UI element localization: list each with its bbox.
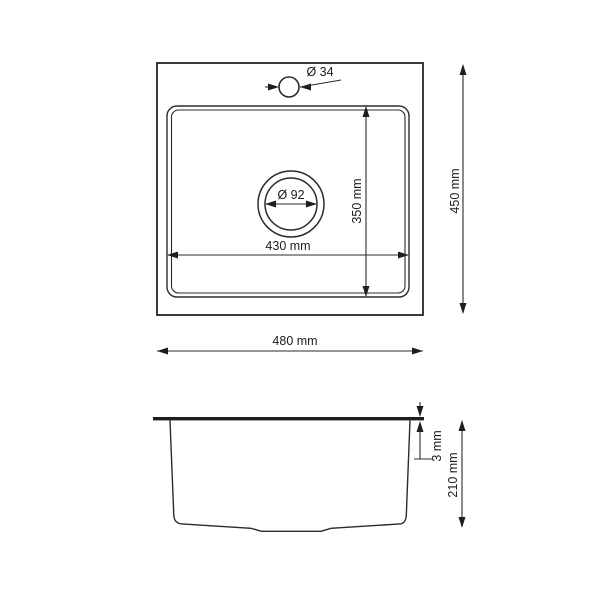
overall-depth-label: 450 mm	[448, 168, 462, 213]
top-view: Ø 34 Ø 92 350 mm	[157, 63, 467, 355]
arrowhead-down-icon	[417, 406, 424, 417]
technical-drawing-canvas: Ø 34 Ø 92 350 mm	[0, 0, 600, 600]
arrowhead-right-icon	[412, 348, 423, 355]
arrowhead-down-icon	[363, 286, 370, 297]
bowl-width-label: 430 mm	[265, 239, 310, 253]
sink-dimension-drawing: Ø 34 Ø 92 350 mm	[0, 0, 600, 600]
bowl-height-dimension: 210 mm	[446, 420, 466, 528]
overall-width-label: 480 mm	[272, 334, 317, 348]
faucet-leader-line	[300, 80, 341, 87]
arrowhead-left-icon	[157, 348, 168, 355]
bowl-depth-dimension: 350 mm	[350, 106, 370, 297]
bowl-height-label: 210 mm	[446, 452, 460, 497]
basin-profile	[170, 421, 410, 532]
arrowhead-right-icon	[306, 201, 317, 208]
arrowhead-right-icon	[398, 252, 409, 259]
arrowhead-left-icon	[167, 252, 178, 259]
rim-thickness-label: 3 mm	[430, 430, 444, 461]
side-view: 3 mm 210 mm	[153, 402, 466, 531]
overall-depth-dimension: 450 mm	[448, 64, 467, 314]
bowl-width-dimension: 430 mm	[167, 239, 409, 259]
arrowhead-right-icon	[268, 84, 279, 91]
arrowhead-down-icon	[459, 517, 466, 528]
faucet-hole	[279, 77, 299, 97]
arrowhead-up-icon	[363, 106, 370, 117]
faucet-hole-diameter-label: Ø 34	[306, 65, 333, 79]
rim-thickness-dimension: 3 mm	[414, 402, 444, 462]
drain-dimension: Ø 92	[258, 171, 324, 237]
sink-rim-profile	[153, 417, 424, 420]
arrowhead-down-icon	[460, 303, 467, 314]
drain-diameter-label: Ø 92	[277, 188, 304, 202]
bowl-depth-label: 350 mm	[350, 178, 364, 223]
arrowhead-up-icon	[460, 64, 467, 75]
overall-width-dimension: 480 mm	[157, 334, 423, 355]
faucet-hole-dimension: Ø 34	[265, 65, 341, 97]
arrowhead-left-icon	[265, 201, 276, 208]
arrowhead-up-icon	[459, 420, 466, 431]
